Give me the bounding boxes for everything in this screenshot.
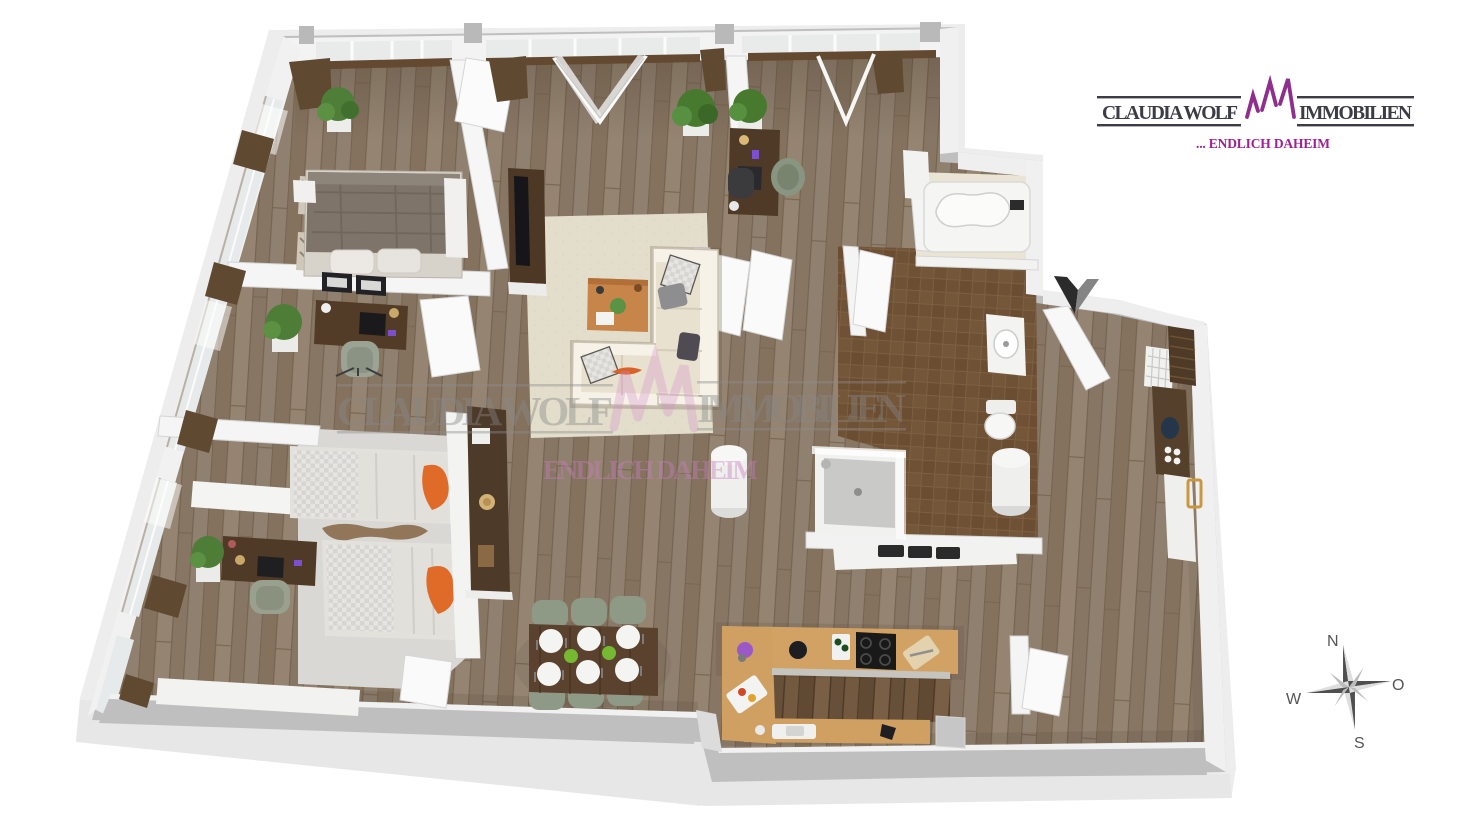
svg-text:W: W (1286, 691, 1302, 708)
svg-text:S: S (1354, 735, 1365, 752)
svg-text:O: O (1392, 677, 1404, 694)
svg-text:ENDLICH DAHEIM: ENDLICH DAHEIM (543, 455, 758, 485)
svg-text:IMMOBILIEN: IMMOBILIEN (1299, 103, 1412, 124)
svg-text:CLAUDIA WOLF: CLAUDIA WOLF (1102, 103, 1238, 124)
svg-text:N: N (1327, 633, 1339, 650)
svg-text:... ENDLICH DAHEIM: ... ENDLICH DAHEIM (1196, 136, 1330, 151)
svg-text:IMMOBILIEN: IMMOBILIEN (697, 385, 906, 431)
svg-text:CLAUDIA WOLF: CLAUDIA WOLF (337, 388, 613, 434)
